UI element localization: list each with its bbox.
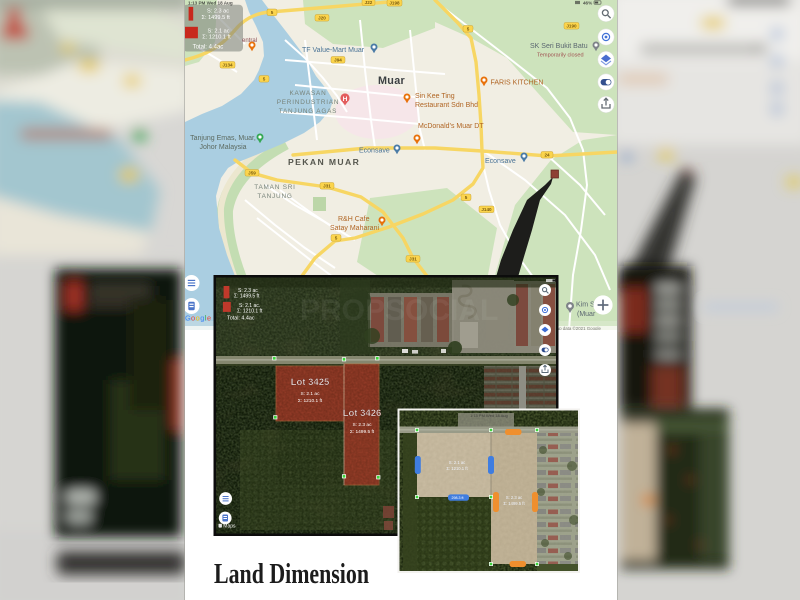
svg-text:S: 2.1 ac: S: 2.1 ac — [208, 29, 230, 35]
svg-text:J198: J198 — [389, 1, 400, 6]
svg-text:5: 5 — [263, 77, 266, 82]
svg-text:Σ: 1499.5 ft: Σ: 1499.5 ft — [234, 294, 260, 300]
svg-text:Total: 4.4ac: Total: 4.4ac — [193, 44, 224, 50]
svg-text:Johor Malaysia: Johor Malaysia — [199, 144, 246, 151]
svg-text:Σ: 1210.1 ft: Σ: 1210.1 ft — [298, 398, 323, 404]
svg-text:J22: J22 — [365, 0, 373, 5]
svg-text:S: 2.1 ac: S: 2.1 ac — [301, 391, 321, 397]
svg-text:Temporarily closed: Temporarily closed — [537, 53, 584, 59]
svg-text:Σ: 1499.5 ft: Σ: 1499.5 ft — [350, 429, 375, 435]
svg-text:1:13 PM Wed 18 Aug: 1:13 PM Wed 18 Aug — [188, 1, 233, 6]
svg-text:TANJUNG: TANJUNG — [257, 193, 292, 200]
svg-text:PEKAN MUAR: PEKAN MUAR — [288, 157, 360, 167]
svg-text:Σ: 1210.1 ft: Σ: 1210.1 ft — [237, 309, 263, 315]
svg-text:Satay Maharani: Satay Maharani — [330, 225, 379, 232]
svg-text:Lot 3425: Lot 3425 — [291, 377, 330, 388]
svg-text:Sin Kee Ting: Sin Kee Ting — [415, 93, 455, 100]
svg-text:PROPSOCIAL: PROPSOCIAL — [300, 294, 498, 327]
svg-text:TANJUNG AGAS: TANJUNG AGAS — [279, 108, 337, 115]
svg-text:J94: J94 — [334, 58, 342, 63]
svg-text:Muar: Muar — [378, 75, 405, 87]
svg-text:Σ: 1499.5 ft: Σ: 1499.5 ft — [503, 501, 525, 506]
svg-text:J134: J134 — [222, 63, 233, 68]
svg-text:5: 5 — [271, 10, 274, 15]
svg-text:Total: 4.4ac: Total: 4.4ac — [227, 316, 255, 322]
svg-text:Σ: 1499.5 ft: Σ: 1499.5 ft — [202, 15, 231, 21]
svg-text:Kim S: Kim S — [576, 302, 595, 309]
svg-text:5: 5 — [465, 195, 468, 200]
svg-text:e: e — [207, 314, 211, 323]
svg-text:46%: 46% — [583, 1, 592, 6]
svg-text:5: 5 — [335, 236, 338, 241]
svg-text:McDonald’s Muar DT: McDonald’s Muar DT — [418, 123, 484, 130]
svg-text:H: H — [343, 96, 348, 103]
svg-text:1:13 PM Wed 18 Aug: 1:13 PM Wed 18 Aug — [470, 413, 508, 418]
svg-text:TF Value-Mart Muar: TF Value-Mart Muar — [302, 47, 365, 54]
svg-text:Econsave: Econsave — [485, 158, 516, 165]
svg-text:Econsave: Econsave — [359, 148, 390, 155]
svg-text:24: 24 — [544, 153, 550, 158]
svg-text:Tanjung Emas, Muar,: Tanjung Emas, Muar, — [190, 135, 256, 142]
svg-text:S: 2.3 ac: S: 2.3 ac — [506, 495, 523, 500]
svg-text:J140: J140 — [481, 207, 492, 212]
svg-text:o: o — [196, 314, 200, 323]
svg-text:Restaurant Sdn Bhd: Restaurant Sdn Bhd — [415, 102, 478, 109]
svg-text:J31: J31 — [323, 184, 331, 189]
svg-text:298.3 ft: 298.3 ft — [452, 496, 464, 500]
svg-text:5: 5 — [467, 27, 470, 32]
svg-text:Maps: Maps — [223, 524, 236, 530]
svg-text:entral: entral — [242, 38, 257, 44]
svg-text:o: o — [191, 314, 195, 323]
svg-text:J20: J20 — [318, 16, 326, 21]
svg-text:Lot 3426: Lot 3426 — [343, 408, 382, 419]
svg-text:Σ: 1210.1 ft: Σ: 1210.1 ft — [202, 35, 231, 41]
svg-text:PERINDUSTRIAN: PERINDUSTRIAN — [277, 99, 340, 106]
svg-text:g: g — [200, 314, 204, 323]
svg-text:Land Dimension: Land Dimension — [214, 559, 369, 590]
svg-text:KAWASAN: KAWASAN — [289, 90, 326, 97]
svg-text:FARIS KITCHEN: FARIS KITCHEN — [491, 80, 544, 87]
svg-text:S: 2.1 ac: S: 2.1 ac — [449, 460, 466, 465]
svg-text:TAMAN SRI: TAMAN SRI — [254, 184, 296, 191]
svg-text:(Muar: (Muar — [577, 311, 596, 318]
svg-text:Σ: 1210.1 ft: Σ: 1210.1 ft — [446, 466, 468, 471]
svg-text:S: 2.3 ac: S: 2.3 ac — [207, 9, 229, 15]
svg-text:J190: J190 — [566, 24, 577, 29]
svg-text:R&H Cafe: R&H Cafe — [338, 216, 370, 223]
svg-text:S: 2.3 ac: S: 2.3 ac — [353, 422, 373, 428]
svg-text:J31: J31 — [409, 257, 417, 262]
svg-text:SK Seri Bukit Batu: SK Seri Bukit Batu — [530, 43, 588, 50]
svg-text:J59: J59 — [248, 171, 256, 176]
